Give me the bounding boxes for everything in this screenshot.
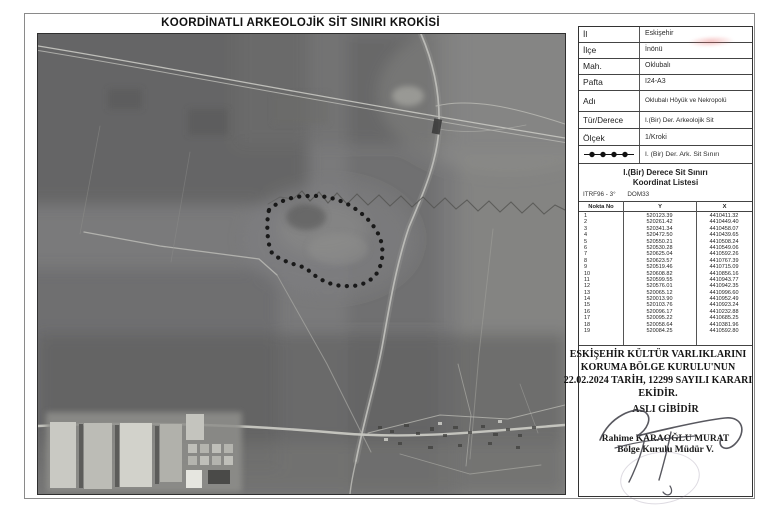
info-value: Oklubalı <box>639 59 752 74</box>
decision-line: ESKİŞEHİR KÜLTÜR VARLIKLARINI <box>558 348 758 361</box>
page-title: KOORDİNATLI ARKEOLOJİK SİT SINIRI KROKİS… <box>37 17 564 29</box>
col-y: Y <box>623 202 696 211</box>
coordinate-title-line2: Koordinat Listesi <box>579 178 752 188</box>
coord-y: 520084.25 <box>623 328 696 334</box>
coord-x: 4410592.80 <box>696 328 752 334</box>
document-page: KOORDİNATLI ARKEOLOJİK SİT SINIRI KROKİS… <box>0 0 760 507</box>
info-value: I.(Bir) Der. Arkeolojik Sit <box>639 112 752 128</box>
info-label: Ölçek <box>579 129 639 145</box>
datum-zone: DOM33 <box>627 191 649 198</box>
coordinate-list: I.(Bir) Derece Sit Sınırı Koordinat List… <box>579 164 752 346</box>
info-label: Tür/Derece <box>579 112 639 128</box>
coord-no: 19 <box>579 328 623 334</box>
info-row-adi: Adı Oklubalı Höyük ve Nekropolü <box>579 91 752 112</box>
info-label: Adı <box>579 91 639 111</box>
col-x: X <box>696 202 752 211</box>
info-label: İlçe <box>579 43 639 58</box>
decision-line: 22.02.2024 TARİH, 12299 SAYILI KARARI <box>558 374 758 387</box>
coordinate-list-title: I.(Bir) Derece Sit Sınırı Koordinat List… <box>579 168 752 188</box>
industrial-complex <box>46 412 242 492</box>
coordinate-title-line1: I.(Bir) Derece Sit Sınırı <box>579 168 752 178</box>
aerial-photo-art <box>38 34 565 494</box>
info-label: Pafta <box>579 75 639 90</box>
coordinate-table-header: Nokta No Y X <box>579 201 752 212</box>
info-row-pafta: Pafta I24-A3 <box>579 75 752 91</box>
info-row-tur-derece: Tür/Derece I.(Bir) Der. Arkeolojik Sit <box>579 112 752 129</box>
info-label: İl <box>579 27 639 42</box>
info-row-mah: Mah. Oklubalı <box>579 59 752 75</box>
info-value: 1/Kroki <box>639 129 752 145</box>
info-value: Oklubalı Höyük ve Nekropolü <box>639 91 752 111</box>
decision-line: KORUMA BÖLGE KURULU'NUN <box>558 361 758 374</box>
legend-label: I. (Bir) Der. Ark. Sit Sınırı <box>639 146 752 163</box>
datum-info: ITRF96 - 3° DOM33 <box>583 191 659 198</box>
col-nokta-no: Nokta No <box>579 202 623 211</box>
coord-row: 19520084.254410592.80 <box>579 328 752 334</box>
coordinate-rows: 1520123.394410411.322520261.424410449.40… <box>579 213 752 334</box>
datum-system: ITRF96 - 3° <box>583 191 616 198</box>
decision-note: ESKİŞEHİR KÜLTÜR VARLIKLARINI KORUMA BÖL… <box>558 348 758 400</box>
info-label: Mah. <box>579 59 639 74</box>
dotted-boundary-symbol-icon <box>579 150 639 159</box>
legend-row: I. (Bir) Der. Ark. Sit Sınırı <box>579 146 752 164</box>
aerial-photo <box>37 33 566 495</box>
info-row-olcek: Ölçek 1/Kroki <box>579 129 752 146</box>
info-value: I24-A3 <box>639 75 752 90</box>
